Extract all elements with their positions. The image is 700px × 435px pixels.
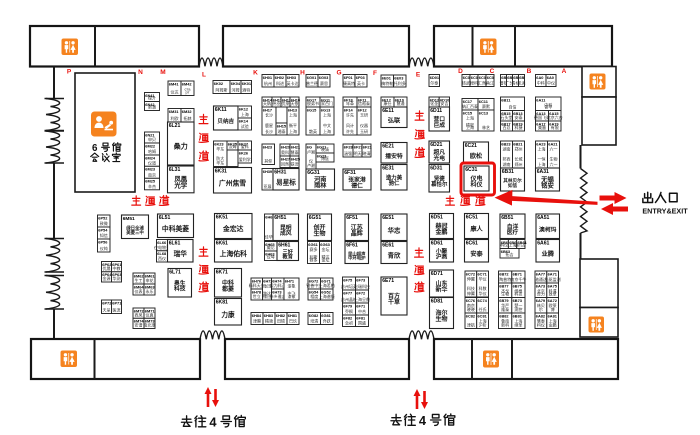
svg-text:6A77: 6A77 (536, 271, 545, 276)
svg-text:6G01: 6G01 (307, 75, 317, 80)
svg-text:科技: 科技 (514, 291, 522, 297)
svg-text:6P72: 6P72 (102, 300, 112, 305)
svg-text:6L61: 6L61 (169, 241, 181, 247)
svg-text:雨林: 雨林 (314, 182, 327, 190)
svg-text:拓赫: 拓赫 (184, 115, 192, 121)
svg-text:6B31: 6B31 (502, 169, 514, 175)
svg-text:6M41: 6M41 (169, 81, 180, 86)
svg-text:6K81: 6K81 (216, 300, 228, 306)
svg-text:化圣: 化圣 (430, 100, 438, 106)
svg-text:石头堂: 石头堂 (501, 114, 513, 120)
svg-text:巨成: 巨成 (433, 121, 445, 129)
svg-text:六一: 六一 (550, 161, 558, 167)
svg-text:拓吉: 拓吉 (506, 251, 514, 257)
svg-text:6A0: 6A0 (547, 75, 554, 80)
svg-text:6C0: 6C0 (463, 75, 470, 80)
svg-text:致微: 致微 (100, 220, 108, 226)
svg-text:美菱三中: 美菱三中 (126, 229, 144, 236)
svg-text:6D21: 6D21 (430, 142, 442, 148)
svg-text:参乡雅吉: 参乡雅吉 (270, 293, 286, 299)
svg-text:玉研: 玉研 (360, 112, 368, 117)
svg-text:天纳: 天纳 (263, 100, 271, 106)
svg-text:教育: 教育 (282, 253, 293, 261)
svg-text:澳柯玛: 澳柯玛 (539, 225, 557, 233)
svg-text:M: M (160, 69, 165, 76)
svg-text:汉姆: 汉姆 (229, 143, 237, 149)
svg-text:光学: 光学 (173, 181, 187, 190)
svg-text:昆明: 昆明 (280, 223, 292, 231)
svg-text:6M22: 6M22 (145, 143, 156, 148)
svg-text:汇然: 汇然 (478, 80, 486, 86)
svg-text:6D31: 6D31 (430, 166, 442, 172)
svg-text:6D11: 6D11 (430, 108, 442, 114)
svg-text:6A31: 6A31 (537, 169, 549, 175)
svg-text:精骑: 精骑 (265, 318, 273, 324)
svg-text:搜科: 搜科 (470, 80, 478, 86)
svg-text:6B: 6B (519, 75, 524, 80)
svg-text:郑州: 郑州 (515, 145, 523, 151)
svg-text:其仰: 其仰 (264, 158, 272, 164)
svg-text:6F61: 6F61 (346, 243, 358, 249)
svg-text:6M31: 6M31 (169, 109, 180, 114)
svg-text:6H61: 6H61 (278, 243, 290, 249)
svg-text:6E11: 6E11 (382, 108, 394, 114)
svg-text:光电: 光电 (432, 154, 445, 162)
svg-text:6F27: 6F27 (354, 144, 363, 149)
svg-text:湖南: 湖南 (503, 145, 511, 151)
svg-text:玉研: 玉研 (360, 129, 368, 134)
svg-text:沪析: 沪析 (479, 322, 487, 328)
svg-text:般为科正: 般为科正 (270, 282, 286, 288)
svg-text:科捷: 科捷 (515, 124, 523, 130)
svg-text:邦西: 邦西 (503, 156, 511, 162)
svg-text:中科: 中科 (222, 279, 234, 287)
svg-text:博医: 博医 (321, 155, 329, 161)
svg-text:湘泰: 湘泰 (278, 128, 286, 134)
svg-text:英卡达: 英卡达 (287, 80, 299, 86)
svg-text:酒特: 酒特 (242, 87, 250, 93)
svg-text:安吉: 安吉 (440, 100, 448, 106)
svg-text:瑞华: 瑞华 (174, 249, 188, 258)
svg-text:6: 6 (92, 143, 98, 154)
svg-text:南京: 南京 (148, 171, 156, 177)
svg-text:纳汇百泰: 纳汇百泰 (462, 103, 478, 109)
svg-text:6B: 6B (513, 75, 518, 80)
svg-text:6K12: 6K12 (239, 106, 249, 111)
svg-text:明天: 明天 (354, 151, 362, 156)
svg-text:百忍: 百忍 (503, 125, 511, 130)
svg-text:6F77: 6F77 (343, 290, 352, 295)
svg-text:华东: 华东 (216, 160, 224, 166)
svg-text:优莱: 优莱 (282, 100, 290, 106)
svg-text:美墨: 美墨 (538, 124, 546, 130)
svg-text:6H83: 6H83 (264, 313, 274, 318)
svg-text:6B72: 6B72 (499, 271, 509, 276)
svg-text:爱利学: 爱利学 (239, 156, 251, 162)
svg-text:广州焦雪: 广州焦雪 (219, 178, 246, 187)
svg-text:6C74: 6C74 (478, 298, 488, 303)
svg-text:驰仁: 驰仁 (389, 179, 400, 187)
svg-text:西凤: 西凤 (135, 312, 143, 317)
svg-text:6B71: 6B71 (513, 271, 523, 276)
svg-text:晓清: 晓清 (363, 150, 371, 156)
svg-text:6M23: 6M23 (145, 167, 156, 172)
svg-text:宏瑞科技: 宏瑞科技 (354, 283, 370, 289)
svg-text:中环电炉: 中环电炉 (348, 255, 366, 262)
svg-text:L: L (202, 72, 206, 79)
svg-text:6B51: 6B51 (501, 215, 513, 221)
svg-text:上海谱振: 上海谱振 (319, 293, 335, 299)
svg-text:N: N (138, 69, 143, 76)
svg-text:桑力: 桑力 (173, 142, 188, 151)
svg-text:弘联: 弘联 (388, 116, 401, 124)
svg-text:上海: 上海 (323, 111, 331, 117)
svg-text:рт: рт (186, 90, 190, 95)
svg-text:金源: 金源 (103, 275, 111, 281)
svg-text:F: F (373, 70, 377, 77)
svg-text:鹿星: 鹿星 (265, 122, 273, 128)
svg-text:任氏: 任氏 (479, 306, 487, 312)
svg-text:利欧: 利欧 (171, 115, 179, 121)
svg-text:易星标: 易星标 (276, 177, 296, 186)
svg-text:天呈: 天呈 (103, 308, 111, 313)
svg-text:奥科: 奥科 (281, 149, 289, 155)
svg-text:科技: 科技 (174, 285, 186, 293)
svg-text:尔: 尔 (539, 306, 543, 312)
svg-text:国盛: 国盛 (358, 320, 366, 326)
svg-text:6H81: 6H81 (288, 313, 298, 318)
svg-text:创开: 创开 (312, 223, 325, 231)
svg-text:仪电: 仪电 (469, 175, 482, 183)
svg-text:郑州: 郑州 (515, 161, 523, 167)
svg-text:6K26: 6K26 (239, 150, 249, 155)
svg-text:甬江: 甬江 (486, 80, 494, 86)
svg-text:G: G (336, 70, 341, 77)
svg-text:津腾: 津腾 (253, 318, 261, 324)
svg-text:合力: 合力 (537, 291, 545, 297)
svg-text:6K04: 6K04 (231, 81, 241, 86)
svg-text:长城: 长城 (515, 156, 523, 162)
svg-text:铁汾: 铁汾 (291, 161, 299, 167)
svg-text:晓清: 晓清 (321, 146, 329, 152)
svg-text:培清: 培清 (310, 318, 318, 324)
svg-text:播安特: 播安特 (385, 152, 403, 160)
svg-text:6F03: 6F03 (356, 75, 366, 80)
svg-text:ENTRY&EXIT: ENTRY&EXIT (642, 207, 688, 216)
svg-text:伸翼: 伸翼 (467, 290, 475, 296)
svg-text:6F71: 6F71 (356, 303, 366, 308)
svg-text:回然: 回然 (281, 161, 289, 167)
svg-text:6K51: 6K51 (216, 215, 228, 221)
svg-text:天依: 天依 (291, 100, 299, 106)
svg-text:中教: 中教 (113, 265, 121, 271)
svg-text:B: B (527, 68, 532, 75)
svg-text:6H82: 6H82 (276, 313, 286, 318)
svg-text:生物: 生物 (550, 156, 558, 162)
svg-text:慧通: 慧通 (397, 100, 405, 106)
svg-text:晶辉: 晶辉 (351, 229, 363, 237)
svg-text:千草: 千草 (388, 298, 400, 306)
svg-text:试验: 试验 (241, 123, 249, 129)
svg-text:6C82: 6C82 (466, 313, 476, 318)
svg-text:湖南: 湖南 (503, 161, 511, 167)
svg-text:金鹏: 金鹏 (549, 322, 557, 328)
svg-text:华测: 华测 (113, 275, 121, 281)
svg-text:上海: 上海 (509, 242, 517, 248)
svg-text:安泰: 安泰 (470, 250, 483, 258)
svg-text:中仪: 中仪 (547, 80, 555, 86)
svg-text:俊弟书: 俊弟书 (307, 100, 319, 106)
svg-text:安谱: 安谱 (135, 322, 143, 328)
svg-text:6E31: 6E31 (382, 166, 394, 172)
svg-text:念初: 念初 (345, 320, 353, 326)
svg-text:6E03: 6E03 (394, 75, 404, 80)
svg-text:6A0: 6A0 (536, 75, 543, 80)
svg-text:6E61: 6E61 (382, 243, 394, 249)
svg-text:河姆: 河姆 (232, 87, 240, 93)
svg-text:赫冠: 赫冠 (435, 222, 447, 230)
svg-text:仪真: 仪真 (146, 311, 154, 317)
svg-text:张家港: 张家港 (348, 176, 366, 184)
svg-text:6K02: 6K02 (214, 81, 224, 86)
svg-text:中文: 中文 (323, 122, 331, 128)
svg-text:生工: 生工 (135, 277, 143, 283)
svg-text:上海茗勘: 上海茗勘 (319, 282, 335, 288)
svg-text:科仪: 科仪 (470, 181, 483, 189)
svg-text:乔跃: 乔跃 (323, 318, 331, 324)
svg-text:安泰: 安泰 (515, 114, 523, 120)
svg-text:杭州: 杭州 (264, 80, 272, 86)
svg-text:6L71: 6L71 (169, 270, 181, 276)
svg-text:南北潮: 南北潮 (144, 322, 156, 328)
svg-text:6B11: 6B11 (501, 97, 511, 102)
svg-text:E: E (416, 72, 421, 79)
svg-text:6H03: 6H03 (287, 75, 297, 80)
svg-text:乔枫: 乔枫 (345, 308, 353, 314)
svg-text:世立: 世立 (253, 293, 261, 299)
svg-text:上海: 上海 (323, 128, 331, 134)
svg-text:华东: 华东 (216, 145, 224, 151)
svg-text:6F28: 6F28 (344, 144, 354, 149)
svg-text:仪表: 仪表 (135, 288, 143, 294)
svg-text:金坛: 金坛 (322, 257, 330, 263)
svg-text:6K01: 6K01 (242, 81, 252, 86)
svg-text:6F73: 6F73 (356, 277, 366, 282)
svg-text:C: C (490, 68, 495, 75)
svg-text:6H39: 6H39 (263, 169, 273, 174)
svg-text:凯迪: 凯迪 (518, 80, 526, 86)
svg-text:哈姆: 哈姆 (148, 148, 156, 154)
svg-text:沪燕: 沪燕 (436, 253, 448, 261)
svg-text:4: 4 (209, 414, 217, 429)
svg-text:百方: 百方 (388, 292, 400, 300)
svg-text:普兰德: 普兰德 (306, 80, 318, 86)
svg-text:6D51: 6D51 (431, 215, 443, 221)
svg-text:上海佑科: 上海佑科 (220, 249, 247, 258)
svg-text:许先: 许先 (346, 111, 354, 117)
svg-text:仪达: 仪达 (171, 89, 179, 95)
svg-text:6F21: 6F21 (363, 144, 373, 149)
svg-text:6B: 6B (507, 75, 512, 80)
svg-text:6A61: 6A61 (537, 241, 549, 247)
svg-text:晓晓: 晓晓 (467, 306, 475, 312)
svg-text:6G81: 6G81 (321, 313, 331, 318)
svg-text:6K14: 6K14 (239, 118, 249, 123)
svg-text:6D61: 6D61 (431, 241, 443, 247)
svg-text:6H51: 6H51 (274, 215, 286, 221)
svg-text:卢湘: 卢湘 (307, 162, 315, 168)
svg-text:力康: 力康 (221, 310, 235, 319)
svg-text:散英: 散英 (309, 128, 317, 134)
svg-text:营口: 营口 (433, 115, 445, 123)
svg-text:衡平: 衡平 (289, 122, 297, 128)
svg-text:南京千牛: 南京千牛 (510, 276, 526, 282)
svg-text:欧松: 欧松 (470, 152, 483, 160)
svg-text:小聚: 小聚 (435, 247, 448, 255)
svg-text:6E21: 6E21 (382, 144, 394, 150)
svg-text:金宏达: 金宏达 (222, 224, 244, 233)
svg-text:成风: 成风 (280, 229, 292, 237)
svg-text:6P56: 6P56 (98, 239, 108, 244)
svg-text:佳华: 佳华 (265, 234, 273, 240)
svg-text:一恒: 一恒 (538, 156, 546, 162)
svg-text:6C0: 6C0 (487, 75, 494, 80)
svg-text:上海: 上海 (466, 124, 474, 130)
svg-text:博: 博 (551, 306, 555, 312)
svg-text:如信: 如信 (508, 182, 518, 189)
svg-text:仪器: 仪器 (360, 123, 368, 128)
svg-text:许先: 许先 (346, 128, 354, 134)
svg-text:金鹏: 金鹏 (434, 228, 447, 236)
svg-text:华志: 华志 (388, 225, 401, 234)
svg-text:6G31: 6G31 (307, 170, 320, 176)
svg-text:6B: 6B (501, 75, 506, 80)
svg-text:自信: 自信 (509, 104, 517, 110)
svg-text:医疗: 医疗 (507, 228, 519, 236)
svg-text:6K31: 6K31 (215, 169, 227, 175)
svg-text:西仪: 西仪 (158, 256, 166, 261)
svg-text:6L31: 6L31 (169, 167, 181, 173)
svg-text:康仕: 康仕 (384, 100, 392, 106)
svg-text:赛多: 赛多 (310, 257, 318, 263)
svg-text:中合: 中合 (358, 308, 366, 314)
svg-text:涵强: 涵强 (344, 150, 352, 156)
svg-text:奥生: 奥生 (174, 279, 186, 287)
svg-text:科进: 科进 (276, 80, 284, 86)
svg-text:阿姆斯: 阿姆斯 (216, 87, 228, 93)
svg-text:6C0: 6C0 (479, 75, 486, 80)
svg-text:知信: 知信 (100, 232, 108, 238)
svg-text:中科: 中科 (537, 80, 545, 86)
svg-text:生物: 生物 (501, 291, 509, 297)
svg-text:仪纯: 仪纯 (100, 245, 108, 251)
svg-text:仪道: 仪道 (148, 159, 156, 165)
svg-text:上海: 上海 (289, 111, 297, 117)
svg-text:新潮: 新潮 (148, 104, 156, 110)
svg-text:仪琴: 仪琴 (267, 255, 275, 260)
svg-text:年革: 年革 (346, 100, 354, 106)
svg-text:中科美菱: 中科美菱 (162, 224, 189, 233)
svg-text:隆泰: 隆泰 (501, 306, 509, 312)
svg-text:6H29: 6H29 (281, 144, 291, 149)
svg-text:赛多: 赛多 (310, 246, 318, 252)
svg-text:6M51: 6M51 (123, 216, 135, 222)
svg-text:尔泰: 尔泰 (430, 80, 438, 86)
svg-text:核武: 核武 (462, 80, 470, 86)
svg-text:业腾: 业腾 (542, 250, 555, 258)
svg-text:A: A (562, 68, 567, 75)
svg-text:德仁: 德仁 (351, 181, 363, 189)
svg-text:信裕泰: 信裕泰 (358, 100, 370, 106)
svg-text:6F72: 6F72 (356, 290, 366, 295)
svg-text:家百门: 家百门 (321, 100, 333, 106)
svg-text:相度: 相度 (310, 293, 318, 299)
svg-text:6H21: 6H21 (291, 144, 301, 149)
svg-text:长沙: 长沙 (265, 111, 273, 117)
svg-text:6H15: 6H15 (277, 123, 287, 128)
svg-text:北京六合: 北京六合 (547, 114, 563, 120)
svg-text:超凡: 超凡 (432, 148, 445, 156)
svg-text:有限: 有限 (551, 124, 559, 130)
svg-text:H: H (300, 70, 305, 77)
svg-text:伟业: 伟业 (273, 100, 281, 106)
svg-text:绿升: 绿升 (148, 95, 156, 101)
svg-text:漆象: 漆象 (288, 282, 296, 288)
svg-text:慕恰尔: 慕恰尔 (431, 180, 448, 188)
svg-text:亚展: 亚展 (264, 183, 272, 189)
svg-text:6C13: 6C13 (479, 110, 489, 115)
svg-text:陶普特: 陶普特 (499, 276, 511, 282)
svg-text:D: D (458, 68, 463, 75)
svg-text:长沙: 长沙 (265, 128, 273, 134)
svg-text:赛思: 赛思 (320, 80, 328, 86)
svg-text:上海: 上海 (538, 161, 546, 167)
svg-text:6F01: 6F01 (344, 75, 354, 80)
svg-text:上海: 上海 (538, 145, 546, 151)
svg-text:6K11: 6K11 (215, 107, 227, 113)
svg-text:6C21: 6C21 (465, 143, 477, 149)
svg-text:英卡: 英卡 (357, 80, 365, 86)
svg-text:6F79: 6F79 (343, 303, 353, 308)
svg-text:六一: 六一 (550, 145, 558, 151)
svg-text:6E71: 6E71 (382, 278, 394, 284)
svg-text:6C0: 6C0 (471, 75, 478, 80)
svg-text:卢湘: 卢湘 (307, 148, 315, 154)
svg-text:上海: 上海 (241, 111, 249, 117)
svg-text:6F51: 6F51 (346, 215, 358, 221)
svg-text:6P54: 6P54 (98, 227, 108, 232)
svg-text:上海: 上海 (289, 128, 297, 134)
svg-text:6A51: 6A51 (537, 215, 549, 221)
svg-text:金坛: 金坛 (322, 246, 330, 252)
svg-text:永乐: 永乐 (146, 288, 154, 294)
svg-text:6H02: 6H02 (275, 75, 285, 80)
svg-text:K: K (253, 70, 258, 77)
svg-text:铭安: 铭安 (541, 181, 554, 190)
svg-text:6E01: 6E01 (382, 75, 392, 80)
svg-text:爱科: 爱科 (241, 143, 249, 149)
svg-text:骨华: 骨华 (544, 104, 552, 110)
svg-text:6P52: 6P52 (98, 215, 108, 220)
svg-text:4: 4 (419, 413, 427, 428)
svg-text:江苏: 江苏 (351, 223, 363, 231)
svg-text:优晟: 优晟 (103, 265, 111, 271)
svg-text:华仪: 华仪 (479, 275, 487, 281)
svg-text:科仪: 科仪 (500, 242, 508, 248)
svg-text:贝纳吉: 贝纳吉 (217, 117, 234, 125)
svg-text:6F75: 6F75 (343, 277, 353, 282)
svg-text:巴玖: 巴玖 (289, 318, 297, 324)
